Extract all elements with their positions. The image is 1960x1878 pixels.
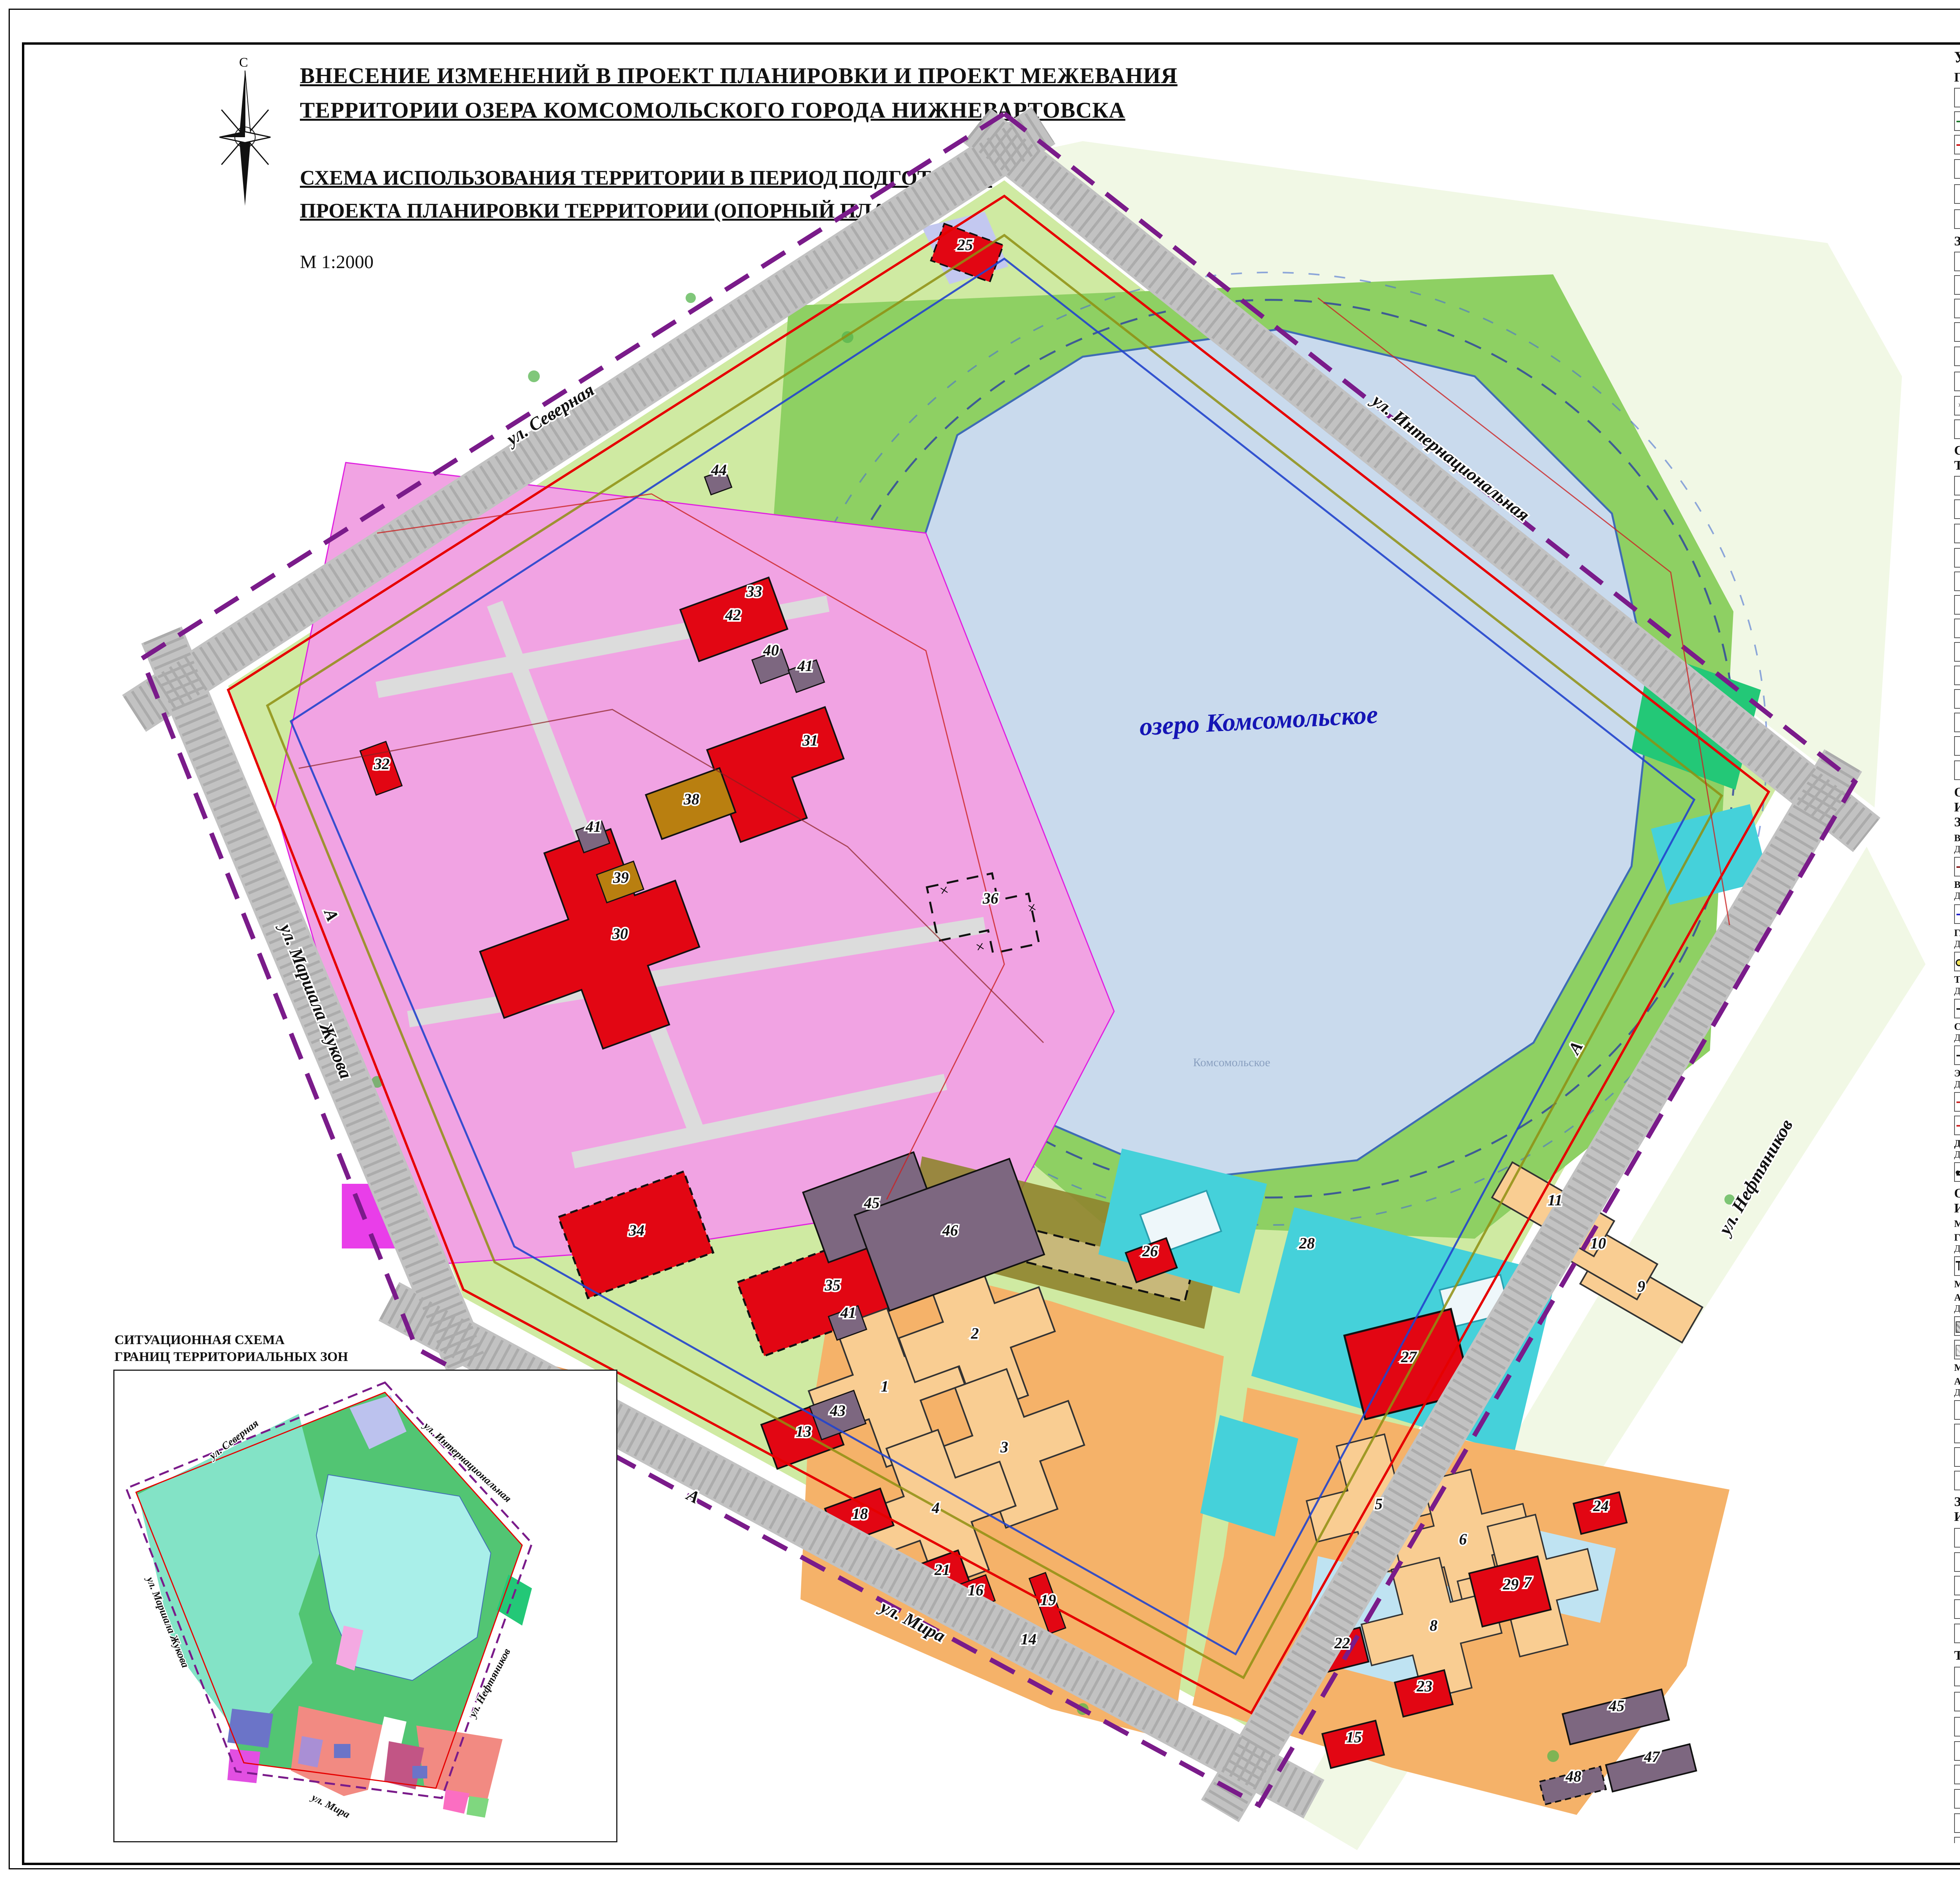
legend-item: Дамбы (1954, 1256, 1960, 1276)
legend-heading: АВТОМОБИЛЬНОГО ТРАНСПОРТА (1954, 1293, 1960, 1303)
legend-item: Границы земельных участков с государстве… (1954, 183, 1960, 205)
legend-swatch: К (1954, 857, 1960, 876)
lake-sublabel: Комсомольское (1193, 1056, 1270, 1069)
legend-item: Хозяйственно-питьевые и противопожарные … (1954, 903, 1960, 925)
bus-stop-icon: А (1954, 1424, 1960, 1443)
building-number-label: 46 (942, 1221, 958, 1239)
building-number-label: 34 (628, 1221, 644, 1239)
building-number-label: 45 (1608, 1697, 1624, 1715)
legend-heading: ВОДОСНАБЖЕНИЯ (1954, 880, 1960, 890)
legend-heading: ГАЗОСНАБЖЕНИЯ (1954, 928, 1960, 938)
legend-item: Зона объектов торгового назначения (1954, 1741, 1960, 1761)
legend-item: АОстановка автобуса (1954, 1423, 1960, 1444)
legend-heading: ДЕЙСТВУЮЩИЙ (1954, 1388, 1960, 1398)
building-number-label: 45 (864, 1194, 880, 1212)
legend-heading: ГРАНИЦЫ (1954, 70, 1960, 85)
legend-swatch (1954, 275, 1960, 295)
legend-heading: МЕСТНОГО ЗНАЧЕНИЯ (1954, 1219, 1960, 1229)
legend-swatch (1954, 1789, 1960, 1809)
building-number-label: 15 (1346, 1728, 1362, 1746)
legend-item: Улично-дорожная сеть (1954, 1316, 1960, 1336)
legend-swatch (1954, 1576, 1960, 1595)
schema-residential (416, 1726, 503, 1802)
legend-item: Общественные здания строящиеся (1954, 298, 1960, 319)
legend-swatch (1954, 209, 1960, 229)
legend-swatch (1954, 88, 1960, 107)
building-number-label: 9 (1637, 1277, 1645, 1295)
legend-item: Границы земельных участков с неустановле… (1954, 158, 1960, 180)
schema-social-zone (443, 1789, 469, 1814)
legend-swatch (1954, 1340, 1960, 1359)
legend-item: Красные линии проектируемые (1954, 134, 1960, 155)
legend-swatch (1954, 1624, 1960, 1643)
building-number-label: 10 (1590, 1234, 1606, 1252)
legend-item: Стоянка транспортных средств (1954, 1400, 1960, 1420)
legend-swatch (1954, 548, 1960, 568)
legend-swatch (1954, 159, 1960, 179)
legend-item: Общественные здания (1954, 275, 1960, 295)
legend-swatch (1954, 736, 1960, 756)
building-number-label: 14 (1021, 1630, 1036, 1648)
legend-item: Зона объектов культурно-досугового назна… (1954, 1788, 1960, 1810)
legend-heading: ГИДРОТЕХНИЧЕСКИЕ СООРУЖЕНИЯ (1954, 1233, 1960, 1243)
legend-item: 0,4Линии электропередачи 0,4 кВ (1954, 1092, 1960, 1112)
legend-item: Инженерные и транспортные сооружения стр… (1954, 345, 1960, 367)
legend-swatch (1954, 476, 1960, 495)
building-number-label: 38 (683, 790, 699, 808)
building-number-label: 11 (1548, 1191, 1563, 1209)
building-number-label: 47 (1644, 1748, 1661, 1766)
legend-heading: ВОДООТВЕДЕНИЯ (1954, 833, 1960, 844)
legend-heading: ЗОНЫ С ОСОБЫМИ УСЛОВИЯМИ ИСПОЛЬЗОВАНИЯ Т… (1954, 1495, 1960, 1524)
legend-item: Красные линии существующие (1954, 111, 1960, 131)
legend-item: Прибрежная защитная полоса (1954, 1552, 1960, 1572)
building-number-label: 7 (1524, 1573, 1532, 1591)
legend-swatch: Т (1954, 999, 1960, 1018)
building-number-label: 19 (1040, 1591, 1056, 1609)
building-number-label: 35 (824, 1276, 840, 1294)
legend-swatch (1954, 1045, 1960, 1065)
legend-heading: МЕСТНОГО ЗНАЧЕНИЯ (1954, 1363, 1960, 1373)
building-number-label: 4 (931, 1499, 940, 1517)
legend-swatch (1954, 904, 1960, 924)
legend-heading: ТЕПЛОСНАБЖЕНИЯ (1954, 975, 1960, 985)
building-number-label: 43 (829, 1402, 846, 1419)
building-number-label: 22 (1334, 1634, 1350, 1652)
legend-item: Зона объектов культового назначения (1954, 1836, 1960, 1843)
legend-swatch (1954, 347, 1960, 366)
building-number-label: 40 (763, 641, 779, 659)
building-number-label: 25 (957, 236, 973, 254)
legend-item: Береговые полосы внутренних водных путей (1954, 1527, 1960, 1549)
legend-swatch (1954, 713, 1960, 732)
legend-heading: СОВРЕМЕННОЕ ИСПОЛЬЗОВАНИЕ ТЕРРИТОРИИ (1954, 443, 1960, 473)
legend-swatch (1954, 1741, 1960, 1761)
legend-heading: ДЕЙСТВУЮЩИЙ (1954, 1080, 1960, 1090)
legend-swatch (1954, 572, 1960, 591)
legend-item: Транспортной инфраструктуры (1954, 665, 1960, 686)
legend-heading: ДЕЙСТВУЮЩИЙ (1954, 844, 1960, 855)
legend-swatch (1954, 419, 1960, 439)
traffic-light-icon (1954, 1471, 1960, 1490)
building-number-label: 28 (1299, 1234, 1315, 1252)
situational-schema: ул. Севернаяул. Интернациональнаяул. Неф… (113, 1370, 617, 1842)
legend-swatch (1954, 595, 1960, 615)
legend-heading: ЗДАНИЯ И СООРУЖЕНИЯ (1954, 234, 1960, 249)
legend-heading: ТЕРРИТОРИАЛЬНЫЕ ЗОНЫ (1954, 1648, 1960, 1663)
building-number-label: 2 (971, 1325, 979, 1342)
legend-swatch (1954, 666, 1960, 685)
legend-item: Природного ландшафта (1954, 736, 1960, 756)
legend-swatch (1954, 1599, 1960, 1619)
legend-item: Озелененных территорий общего пользовани… (1954, 759, 1960, 781)
legend-item: Жилые здания (1954, 251, 1960, 272)
legend-item: Кабельные канализации связи (1954, 1045, 1960, 1065)
legend-item: Граница проекта планировки (1954, 87, 1960, 108)
building-number-label: 44 (711, 461, 727, 479)
legend-heading: ДЕЙСТВУЮЩИЙ (1954, 1150, 1960, 1160)
car-icon (1954, 1400, 1960, 1420)
legend-swatch (1954, 135, 1960, 154)
legend-item: Границы земельных участков с частной фор… (1954, 208, 1960, 230)
legend-heading: ОБЪЕКТЫ ТРАНСПОРТНОЙ ИНФРАСТРУКТУРЫ (1954, 1186, 1960, 1216)
legend-item: Проезды (1954, 1339, 1960, 1360)
legend-item: Трубопроводы (1954, 1162, 1960, 1182)
legend-swatch (1954, 1717, 1960, 1736)
legend-swatch (1954, 184, 1960, 204)
legend-swatch (1954, 642, 1960, 662)
building-number-label: 42 (725, 606, 741, 624)
legend-swatch (1954, 689, 1960, 709)
legend-item: Территорий, покрытых лесом и кустарником (1954, 712, 1960, 733)
dam-icon (1954, 1256, 1960, 1276)
building-number-label: 39 (613, 869, 629, 886)
building-number-label: 26 (1142, 1242, 1158, 1260)
legend-item: Зона объектов многоэтажной жилой застрой… (1954, 1666, 1960, 1687)
legend-heading: МЕСТНОГО ЗНАЧЕНИЯ (1954, 1279, 1960, 1290)
schema-transport-zone (227, 1709, 273, 1748)
legend-item: Зона объектов учебно-образовательная (1954, 1764, 1960, 1785)
legend-item: КСети канализации (1954, 856, 1960, 877)
building-number-label: 48 (1565, 1767, 1581, 1785)
svg-text:×: × (1958, 401, 1960, 410)
legend-swatch (1954, 322, 1960, 342)
building-number-label: 31 (802, 731, 818, 749)
legend-heading: ДЕЙСТВУЮЩИЙ (1954, 939, 1960, 950)
building-number-label: 32 (374, 755, 390, 773)
legend-item: ×××Объекты с незавершенным строительство… (1954, 396, 1960, 416)
building-number-label: 27 (1401, 1348, 1417, 1366)
building-number-label: 3 (1000, 1438, 1008, 1456)
schema-transport-zone (412, 1766, 427, 1778)
legend-item: Спортивного назначения (1954, 595, 1960, 615)
building-number-label: 8 (1430, 1617, 1437, 1634)
building-number-label: 6 (1459, 1530, 1467, 1548)
legend-swatch (1954, 1692, 1960, 1711)
legend-item: ТТепловые сети (1954, 998, 1960, 1019)
unfinished-icon: ××× (1954, 396, 1960, 416)
legend-swatch (1954, 1552, 1960, 1572)
legend-item: ОЗ систем нефте- и газоснабжения (1954, 1599, 1960, 1619)
legend-heading: ДЕЙСТВУЮЩИЙ (1954, 986, 1960, 997)
legend-item: Газопроводы среднего давления (1954, 951, 1960, 972)
legend-item: Учебно-образовательная (1954, 548, 1960, 568)
legend-swatch (1954, 1765, 1960, 1784)
building-number-label: 41 (585, 818, 601, 835)
legend-swatch (1954, 299, 1960, 318)
legend-heading: ДЕЙСТВУЮЩИЙ (1954, 1304, 1960, 1314)
legend-swatch (1954, 760, 1960, 780)
legend-heading: ДЕЙСТВУЮЩИЙ (1954, 1033, 1960, 1043)
legend-swatch (1954, 1528, 1960, 1548)
building-number-label: 23 (1416, 1677, 1432, 1695)
building-number-label: 36 (982, 889, 998, 907)
building-number-label: 18 (852, 1505, 868, 1522)
schema-admin-zone (227, 1749, 260, 1783)
legend-swatch: 10 (1954, 1116, 1960, 1135)
legend-swatch (1954, 952, 1960, 971)
legend: УСЛОВНЫЕ ОБОЗНАЧЕНИЯГРАНИЦЫГраница проек… (1954, 48, 1960, 1843)
legend-heading: ДЕЙСТВУЮЩИЙ (1954, 891, 1960, 902)
legend-item: Многоэтажной жилой застройки (1954, 475, 1960, 496)
building-number-label: 5 (1375, 1495, 1383, 1513)
legend-swatch (1954, 524, 1960, 543)
legend-swatch (1954, 619, 1960, 638)
legend-swatch (1954, 1837, 1960, 1843)
legend-swatch (1954, 111, 1960, 131)
legend-swatch (1954, 372, 1960, 391)
legend-swatch: 0,4 (1954, 1092, 1960, 1112)
legend-item: Производственные и коммунально-складские… (1954, 370, 1960, 392)
legend-item: Акваторий (1954, 689, 1960, 709)
schema-recreation-zone (466, 1796, 489, 1818)
legend-heading: ДЕЙСТВУЮЩИЙ (1954, 1244, 1960, 1254)
legend-item: Инженерные и транспортные сооружения (1954, 322, 1960, 342)
garage-icon (1954, 1447, 1960, 1467)
legend-heading: ДОБЫЧИ ПОЛЕЗНЫХ ИСКОПАЕМЫХ (1954, 1139, 1960, 1149)
legend-item: Культовая (1954, 642, 1960, 662)
building-number-label: 41 (840, 1304, 856, 1321)
building-number-label: 33 (746, 582, 762, 600)
building-number-label: 30 (612, 925, 628, 942)
schema-transport-zone (334, 1744, 350, 1758)
building-number-label: 24 (1593, 1497, 1609, 1515)
plan-sheet: С ВНЕСЕНИЕ ИЗМЕНЕНИЙ В ПРОЕКТ ПЛАНИРОВКИ… (0, 0, 1960, 1878)
legend-swatch (1954, 1813, 1960, 1833)
legend-swatch (1954, 499, 1960, 519)
legend-item: Культурно-досуговая (1954, 571, 1960, 592)
legend-item: Зона объектов социального коммунально-бы… (1954, 1716, 1960, 1738)
building-number-label: 1 (881, 1377, 889, 1395)
situational-schema-title: СИТУАЦИОННАЯ СХЕМАГРАНИЦ ТЕРРИТОРИАЛЬНЫХ… (114, 1332, 348, 1365)
legend-item: Светофорные объекты (1954, 1470, 1960, 1491)
legend-heading: ОБЪЕКТЫ ИНЖЕНЕРНОЙ ИНФРАСТРУКТУРЫ МЕСТНО… (1954, 785, 1960, 830)
legend-swatch (1954, 1667, 1960, 1686)
building-number-label: 41 (797, 657, 813, 675)
legend-heading: ЭЛЕКТРОСНАБЖЕНИЯ (1954, 1069, 1960, 1079)
legend-swatch (1954, 252, 1960, 271)
legend-item: Овощехранилище (1954, 419, 1960, 439)
legend-swatch (1954, 1162, 1960, 1182)
building-number-label: 16 (968, 1581, 984, 1599)
legend-item: Водоохранные зоны (1954, 1575, 1960, 1596)
legend-item: Гаражи индивидуального транспорта (1954, 1447, 1960, 1467)
legend-item: Зона объектов здравоохранения (1954, 1813, 1960, 1833)
legend-item: Здравоохранения (1954, 618, 1960, 639)
legend-swatch (1954, 1316, 1960, 1336)
legend-item: СЗЗ объектов транспортной инфраструктуры (1954, 1622, 1960, 1644)
legend-item: Зона объектов административно-делового н… (1954, 1691, 1960, 1713)
legend-heading: СВЯЗИ (1954, 1022, 1960, 1032)
legend-item: Торгового назначения и общественного пит… (1954, 523, 1960, 544)
building-number-label: 21 (934, 1561, 950, 1579)
building-number-label: 29 (1503, 1575, 1519, 1593)
building-number-label: 13 (796, 1423, 811, 1440)
legend-heading: АВТОМОБИЛЬНОГО ТРАНСПОРТА (1954, 1377, 1960, 1387)
legend-item: 10Линии электропередачи 10(6) кВ (1954, 1115, 1960, 1136)
legend-item: Административно-деловая (1954, 499, 1960, 519)
legend-heading: УСЛОВНЫЕ ОБОЗНАЧЕНИЯ (1954, 48, 1960, 66)
